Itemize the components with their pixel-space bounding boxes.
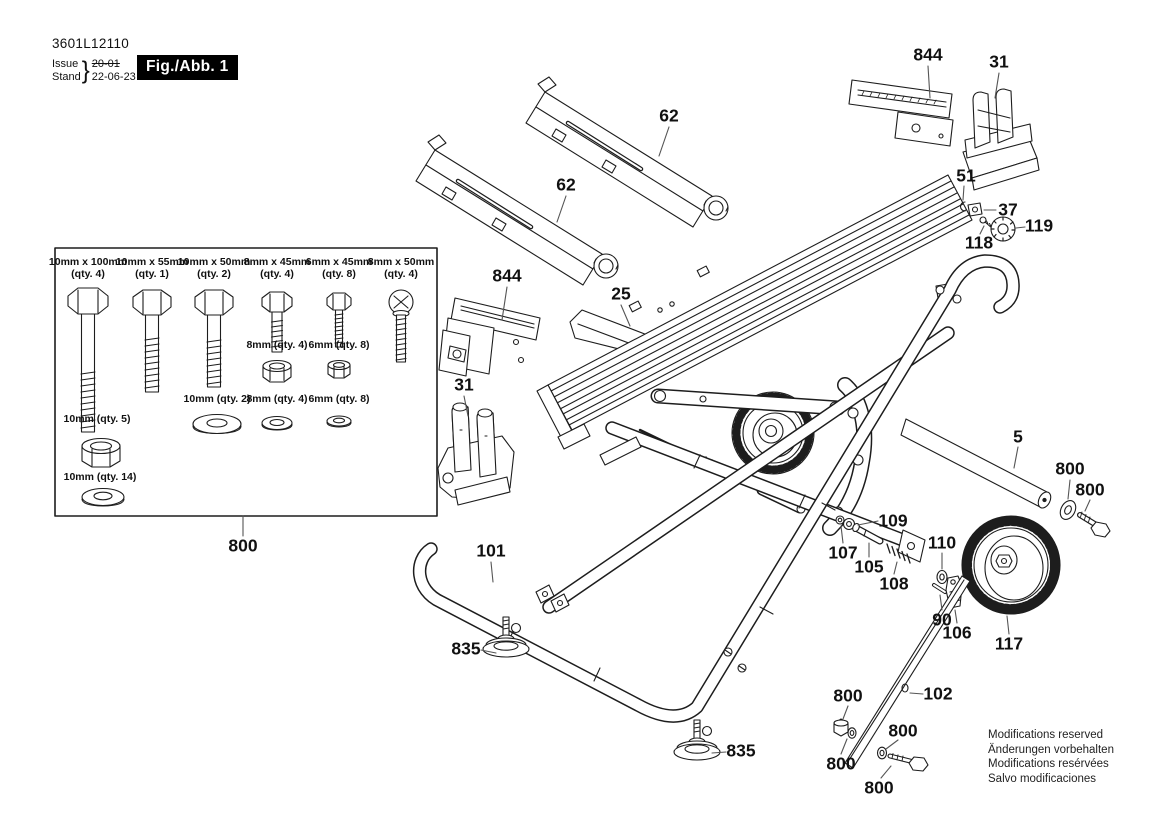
part-callout-800-12: 800 bbox=[1055, 459, 1084, 480]
locknut-8mm-glyph bbox=[263, 361, 291, 383]
part-callout-800-25: 800 bbox=[833, 686, 862, 707]
part-callout-25-9: 25 bbox=[611, 284, 630, 305]
part-callout-107-15: 107 bbox=[828, 543, 857, 564]
part-callout-800-30: 800 bbox=[228, 536, 257, 557]
hardware-item-label-lock-nut-11: 10mm (qty. 5) bbox=[64, 413, 131, 425]
hardware-item-label-washer-10: 6mm (qty. 8) bbox=[308, 393, 369, 405]
part-callout-800-29: 800 bbox=[864, 778, 893, 799]
modifications-notice: Modifications reservedÄnderungen vorbeha… bbox=[988, 728, 1114, 787]
part-callout-108-18: 108 bbox=[879, 574, 908, 595]
hardware-item-label-lock-nut-6: 8mm (qty. 4) bbox=[246, 339, 307, 351]
part-callout-5-11: 5 bbox=[1013, 427, 1023, 448]
part-callout-800-13: 800 bbox=[1075, 480, 1104, 501]
hardware-item-label-hex-bolt-4: 6mm x 45mm(qty. 8) bbox=[306, 256, 373, 281]
part-callout-844-8: 844 bbox=[492, 266, 521, 287]
part-callout-62-2: 62 bbox=[659, 106, 678, 127]
part-callout-118-7: 118 bbox=[965, 233, 993, 254]
model-number: 3601L12110 bbox=[52, 36, 136, 53]
wheel-117 bbox=[962, 516, 1060, 614]
hardware-item-label-washer-12: 10mm (qty. 14) bbox=[64, 471, 137, 483]
hardware-item-label-hex-bolt-3: 8mm x 45mm(qty. 4) bbox=[244, 256, 311, 281]
part-callout-835-23: 835 bbox=[451, 639, 480, 660]
part-callout-106-20: 106 bbox=[942, 623, 971, 644]
part-callout-37-5: 37 bbox=[998, 200, 1017, 221]
part-callout-51-4: 51 bbox=[956, 166, 975, 187]
part-callout-109-14: 109 bbox=[878, 511, 907, 532]
support-rail-62-upper bbox=[526, 77, 728, 227]
leveling-foot-2 bbox=[674, 720, 720, 760]
parts-diagram-page: 3601L12110 Issue Stand } 20-01 22-06-23 … bbox=[0, 0, 1169, 826]
title-block: 3601L12110 Issue Stand } 20-01 22-06-23 bbox=[52, 36, 136, 86]
hardware-item-label-cross-bolt-5: 8mm x 50mm(qty. 4) bbox=[368, 256, 435, 281]
part-callout-31-10: 31 bbox=[454, 375, 473, 396]
hardware-item-label-lock-nut-7: 6mm (qty. 8) bbox=[308, 339, 369, 351]
brace-glyph: } bbox=[82, 55, 90, 87]
part-callout-844-0: 844 bbox=[913, 45, 942, 66]
part-callout-117-21: 117 bbox=[995, 634, 1023, 655]
hardware-item-label-washer-8: 10mm (qty. 2) bbox=[184, 393, 251, 405]
locknut-10mm-glyph bbox=[82, 439, 120, 468]
hardware-item-label-washer-9: 8mm (qty. 4) bbox=[246, 393, 307, 405]
issue-stand-block: Issue Stand } 20-01 22-06-23 bbox=[52, 56, 136, 86]
part-callout-31-1: 31 bbox=[989, 52, 1008, 73]
figure-label: Fig./Abb. 1 bbox=[137, 55, 238, 80]
hardware-item-label-hex-bolt-2: 10mm x 50mm(qty. 2) bbox=[178, 256, 250, 281]
part-callout-119-6: 119 bbox=[1025, 216, 1053, 237]
washer-8mm-glyph bbox=[262, 417, 292, 431]
part-callout-102-26: 102 bbox=[923, 684, 952, 705]
locknut-6mm-glyph bbox=[328, 361, 350, 379]
hardware-box bbox=[55, 248, 437, 536]
axle-tube-5 bbox=[901, 419, 1053, 510]
part-callout-835-24: 835 bbox=[726, 741, 755, 762]
issue-value: 20-01 bbox=[92, 58, 136, 71]
washer-10mm-14-glyph bbox=[82, 489, 124, 507]
part-callout-101-22: 101 bbox=[476, 541, 505, 562]
washer-10mm-glyph bbox=[193, 415, 241, 434]
stand-label: Stand bbox=[52, 71, 81, 84]
fence-bracket-31-left bbox=[438, 403, 514, 505]
part-callout-800-27: 800 bbox=[888, 721, 917, 742]
part-callout-800-28: 800 bbox=[826, 754, 855, 775]
washer-6mm-glyph bbox=[327, 416, 351, 427]
pivot-arm bbox=[655, 391, 841, 413]
part-callout-110-16: 110 bbox=[928, 533, 956, 554]
exploded-view-drawing bbox=[0, 0, 1169, 826]
stand-value: 22-06-23 bbox=[92, 71, 136, 84]
issue-label: Issue bbox=[52, 58, 81, 71]
part-callout-62-3: 62 bbox=[556, 175, 575, 196]
clamp-block-844-top bbox=[849, 80, 953, 146]
axle-washer-bolt bbox=[1057, 498, 1110, 537]
clamp-block-844-left bbox=[439, 298, 540, 376]
